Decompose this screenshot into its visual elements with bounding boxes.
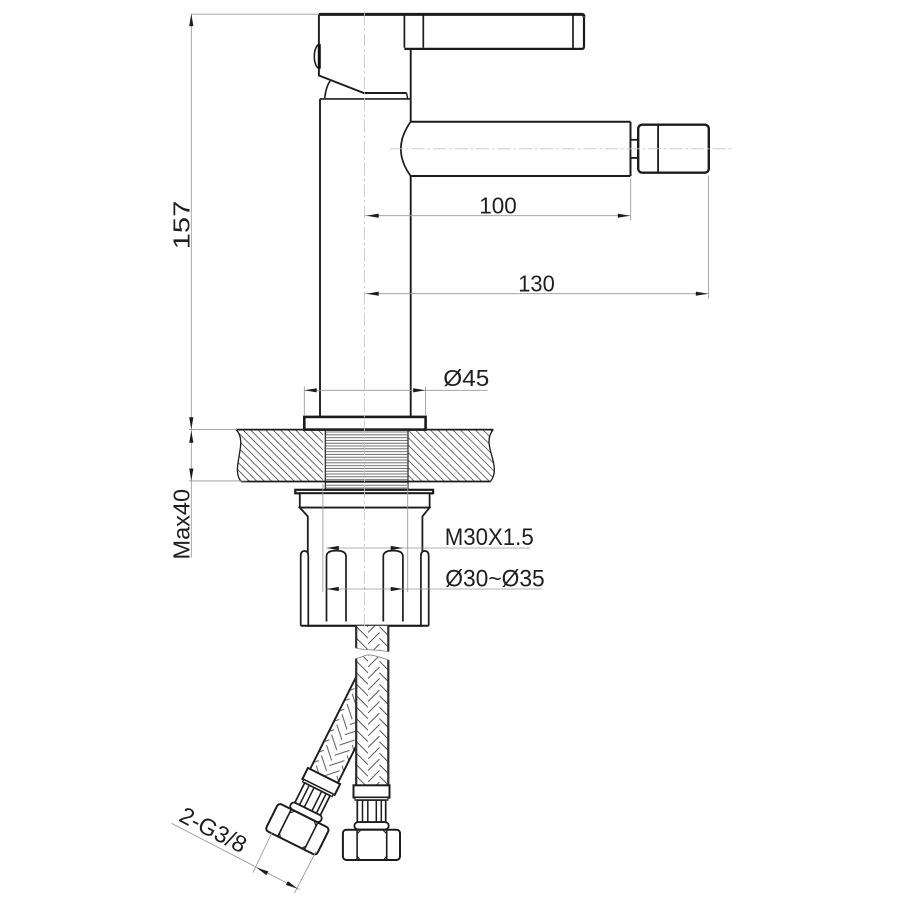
- svg-text:Max40: Max40: [168, 489, 194, 560]
- svg-text:100: 100: [479, 193, 517, 219]
- svg-text:130: 130: [518, 271, 555, 297]
- svg-text:Ø45: Ø45: [443, 365, 489, 391]
- svg-text:Ø30~Ø35: Ø30~Ø35: [445, 566, 545, 593]
- svg-text:157: 157: [168, 201, 194, 250]
- svg-text:M30X1.5: M30X1.5: [445, 524, 534, 551]
